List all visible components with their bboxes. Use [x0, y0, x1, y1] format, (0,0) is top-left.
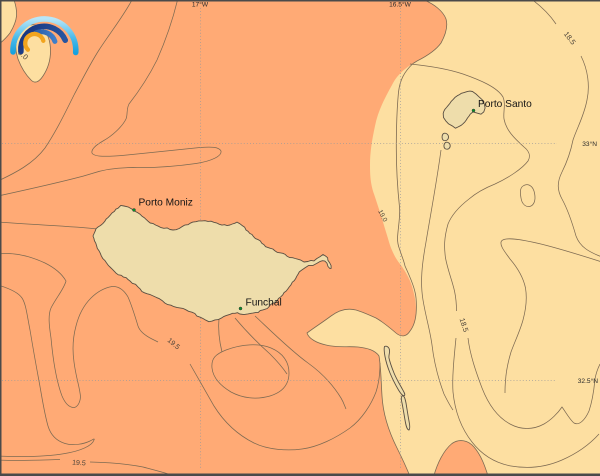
svg-text:Porto Moniz: Porto Moniz: [139, 198, 193, 209]
svg-text:33°N: 33°N: [582, 140, 597, 148]
svg-text:32.5°N: 32.5°N: [578, 377, 598, 385]
svg-text:Porto Santo: Porto Santo: [478, 99, 532, 110]
svg-text:16.5°W: 16.5°W: [389, 0, 411, 8]
svg-text:Funchal: Funchal: [246, 298, 282, 309]
svg-text:17°W: 17°W: [192, 0, 209, 8]
svg-text:19.5: 19.5: [72, 460, 86, 468]
